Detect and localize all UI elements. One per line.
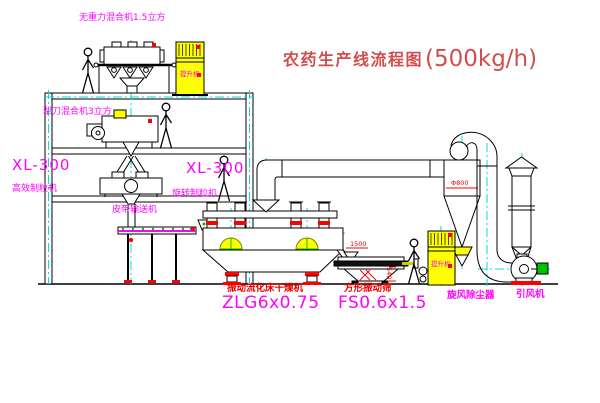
induced-draft-fan <box>511 254 548 285</box>
label-elevator-1: 提升机 <box>180 71 200 78</box>
label-gravity-mixer: 无重力混合机1.5立方 <box>79 14 165 23</box>
label-fan: 引风机 <box>516 290 545 300</box>
fluid-bed-dryer <box>203 202 352 285</box>
label-belt-conveyor: 皮带输送机 <box>112 206 157 215</box>
label-granulator-right: 旋转制粒机 <box>172 190 217 199</box>
bucket-elevator-2 <box>428 231 455 285</box>
flow-diagram-page: 农药生产线流程图 (500kg/h) 无重力混合机1.5立方 犁刀混合机3立方 … <box>0 0 600 403</box>
label-sieve-model: FS0.6x1.5 <box>338 295 427 312</box>
dim-sieve-length: 1500 <box>350 241 367 248</box>
diagram-title: 农药生产线流程图 (500kg/h) <box>283 48 537 71</box>
label-xl300-left: XL-300 <box>12 158 70 173</box>
label-granulator-left: 高效制粒机 <box>12 185 57 194</box>
dim-sieve-height: 540 <box>386 267 393 279</box>
dryer-exhaust-duct <box>253 160 446 212</box>
bucket-elevator-1 <box>172 42 208 95</box>
label-plow-mixer: 犁刀混合机3立方 <box>43 108 112 117</box>
worker-figure-floor2 <box>161 103 172 148</box>
label-elevator-2: 提升机 <box>431 261 451 268</box>
dim-cyclone-diameter: Φ800 <box>451 180 469 187</box>
exhaust-stack <box>506 157 537 260</box>
worker-figure-roof <box>83 48 94 93</box>
title-capacity: (500kg/h) <box>425 48 537 71</box>
belt-conveyor <box>118 220 210 283</box>
label-dryer-model: ZLG6x0.75 <box>222 295 320 312</box>
label-xl300-right: XL-300 <box>186 161 244 176</box>
label-cyclone: 旋风除尘器 <box>447 291 495 301</box>
plow-mixer <box>87 110 158 172</box>
gravity-mixer <box>94 42 176 93</box>
title-text: 农药生产线流程图 <box>283 52 423 68</box>
